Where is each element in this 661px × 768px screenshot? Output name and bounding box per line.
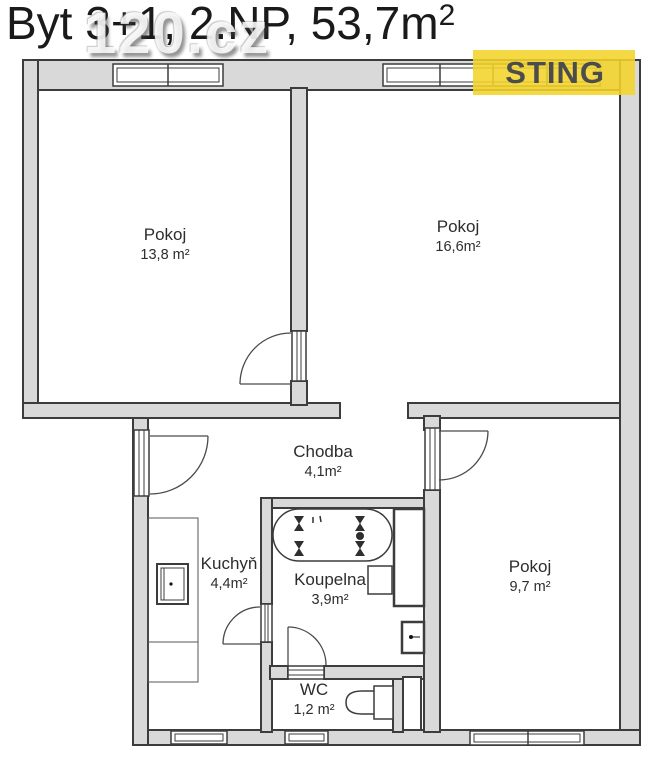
room-name: Chodba — [293, 441, 353, 463]
wall-wc-right — [393, 679, 403, 732]
window-top-left — [113, 64, 223, 86]
door-frame-room3 — [425, 428, 440, 490]
room-name: Pokoj — [140, 224, 189, 246]
room-label-chodba: Chodba 4,1m² — [293, 441, 353, 482]
wall-bath-top — [272, 498, 424, 508]
room-name: WC — [293, 679, 334, 701]
door-swing-room-divider — [240, 333, 291, 384]
room-name: Koupelna — [294, 569, 366, 591]
door-frame-entrance — [134, 430, 149, 496]
floorplan-screenshot: Byt 3+1, 2.NP, 53,7m2 120.cz STING — [0, 0, 661, 768]
wall-wc-top-left — [270, 666, 288, 679]
window-room3-bottom — [470, 731, 584, 745]
window-wc-bottom — [285, 731, 328, 744]
door-swing-wc — [288, 627, 326, 665]
door-swing-kitchen — [223, 607, 260, 644]
stove-icon — [157, 564, 188, 604]
room-label-pokoj2: Pokoj 16,6m² — [435, 216, 480, 257]
room-area: 9,7 m² — [509, 578, 552, 597]
room-area: 4,1m² — [293, 463, 353, 482]
niche-icon — [403, 677, 421, 730]
title-superscript: 2 — [439, 0, 456, 32]
walls — [23, 60, 640, 745]
wall-room-divider-lower — [291, 381, 307, 405]
wall-room-divider-upper — [291, 88, 307, 331]
washbasin-icon — [402, 622, 424, 653]
wall-hall-right — [424, 490, 440, 732]
room-label-koupelna: Koupelna 3,9m² — [294, 569, 366, 610]
room-area: 4,4m² — [201, 575, 258, 594]
floorplan-svg — [0, 0, 661, 768]
sting-logo: STING — [473, 50, 635, 95]
room-name: Kuchyň — [201, 553, 258, 575]
sting-logo-text: STING — [505, 55, 605, 91]
window-kitchen-bottom — [171, 731, 227, 744]
wall-right — [620, 60, 640, 745]
door-swing-room3 — [439, 431, 488, 480]
room-area: 1,2 m² — [293, 701, 334, 720]
toilet-icon — [346, 686, 393, 719]
bathtub-icon — [273, 509, 392, 561]
room-area: 13,8 m² — [140, 246, 189, 265]
door-frame-kitchen — [261, 604, 272, 642]
washing-machine-icon — [368, 566, 392, 594]
room-name: Pokoj — [509, 556, 552, 578]
shaft-icon — [394, 509, 424, 606]
door-frame-room-divider — [292, 331, 306, 381]
door-frame-wc — [288, 666, 324, 679]
room-label-pokoj3: Pokoj 9,7 m² — [509, 556, 552, 597]
room-area: 16,6m² — [435, 238, 480, 257]
wall-left-upper — [23, 60, 38, 418]
room-label-kuchyn: Kuchyň 4,4m² — [201, 553, 258, 594]
wall-mid-right — [408, 403, 640, 418]
room-label-pokoj1: Pokoj 13,8 m² — [140, 224, 189, 265]
room-label-wc: WC 1,2 m² — [293, 679, 334, 720]
room-name: Pokoj — [435, 216, 480, 238]
room-area: 3,9m² — [294, 591, 366, 610]
watermark: 120.cz — [84, 0, 270, 67]
wall-kitchen-bath-upper — [261, 498, 272, 604]
fixtures — [148, 509, 424, 730]
door-swing-entrance — [150, 436, 208, 494]
wall-kitchen-bath-lower — [261, 642, 272, 732]
